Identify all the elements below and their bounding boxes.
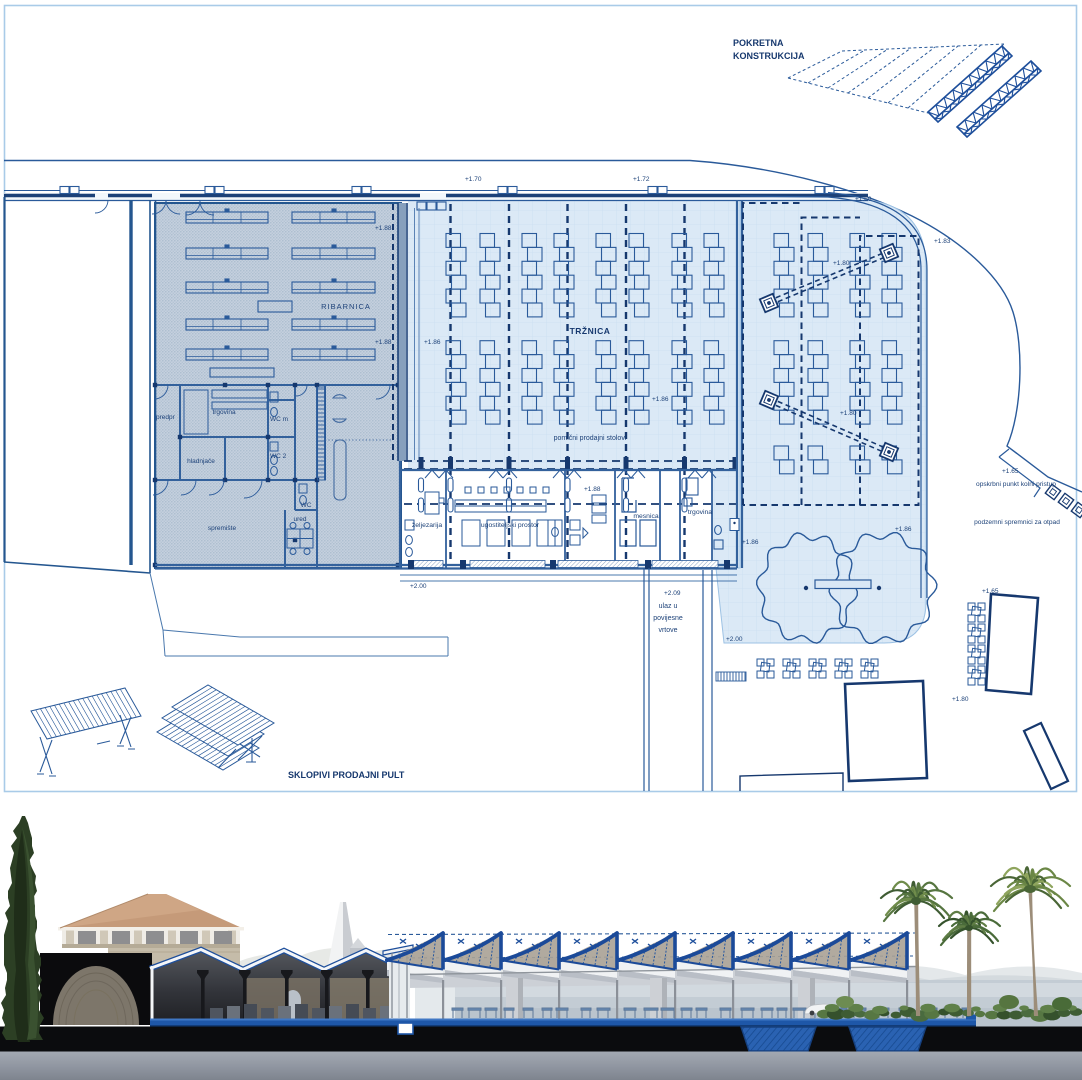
svg-text:TRŽNICA: TRŽNICA <box>570 325 611 336</box>
svg-text:ulaz u: ulaz u <box>659 603 678 610</box>
svg-text:+1.83: +1.83 <box>934 238 951 245</box>
svg-text:WC: WC <box>301 502 312 509</box>
svg-text:+1.80: +1.80 <box>833 260 850 267</box>
svg-text:željezarija: željezarija <box>412 522 442 529</box>
svg-text:+1.80: +1.80 <box>840 410 857 417</box>
svg-text:+1.86: +1.86 <box>895 526 912 533</box>
svg-text:POKRETNA: POKRETNA <box>733 38 784 48</box>
svg-text:trgovina: trgovina <box>688 509 712 516</box>
svg-text:+1.88: +1.88 <box>584 486 601 493</box>
svg-text:+1.88: +1.88 <box>375 339 392 346</box>
svg-text:hladnjače: hladnjače <box>187 458 215 465</box>
svg-text:+1.65: +1.65 <box>982 588 999 595</box>
svg-text:pomični prodajni stolovi: pomični prodajni stolovi <box>554 435 627 442</box>
svg-text:vrtove: vrtove <box>658 627 677 634</box>
svg-text:+1.72: +1.72 <box>633 176 650 183</box>
svg-text:predpr: predpr <box>156 414 176 421</box>
svg-text:RIBARNICA: RIBARNICA <box>321 302 371 311</box>
svg-text:WC 2: WC 2 <box>270 453 287 460</box>
svg-text:spremište: spremište <box>208 525 237 532</box>
svg-text:+1.86: +1.86 <box>652 396 669 403</box>
svg-text:+2.09: +2.09 <box>664 590 681 597</box>
svg-text:ugostiteljski prostor: ugostiteljski prostor <box>481 522 540 529</box>
svg-text:+1.86: +1.86 <box>742 539 759 546</box>
svg-text:+1.70: +1.70 <box>465 176 482 183</box>
svg-text:mesnica: mesnica <box>633 513 659 520</box>
svg-text:podzemni spremnici za otpad: podzemni spremnici za otpad <box>974 519 1060 526</box>
svg-text:+1.86: +1.86 <box>424 339 441 346</box>
svg-text:opskrbni punkt kolni pristup: opskrbni punkt kolni pristup <box>976 481 1056 488</box>
svg-text:SKLOPIVI PRODAJNI PULT: SKLOPIVI PRODAJNI PULT <box>288 770 405 780</box>
svg-text:+1.88: +1.88 <box>375 225 392 232</box>
svg-text:+1.80: +1.80 <box>952 696 969 703</box>
svg-text:+1.65: +1.65 <box>1002 468 1019 475</box>
svg-text:+2.00: +2.00 <box>726 636 743 643</box>
svg-text:WC m: WC m <box>270 416 288 423</box>
svg-text:+1.80: +1.80 <box>855 196 872 203</box>
svg-text:KONSTRUKCIJA: KONSTRUKCIJA <box>733 51 805 61</box>
svg-text:trgovina: trgovina <box>212 409 236 416</box>
svg-text:ured: ured <box>293 516 306 523</box>
svg-text:+2.00: +2.00 <box>410 583 427 590</box>
svg-text:povijesne: povijesne <box>653 615 683 622</box>
